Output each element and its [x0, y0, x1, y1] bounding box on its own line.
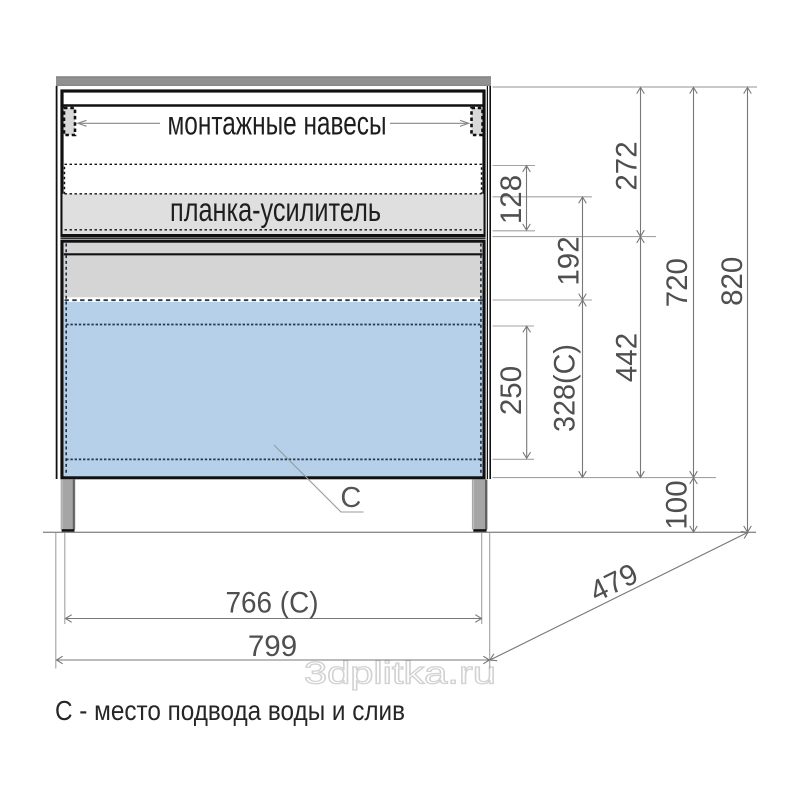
svg-text:328(C): 328(C) — [549, 344, 582, 432]
svg-text:монтажные навесы: монтажные навесы — [168, 105, 387, 142]
svg-text:С - место подвода воды и слив: С - место подвода воды и слив — [55, 695, 405, 726]
svg-text:C: C — [340, 482, 361, 514]
svg-text:192: 192 — [553, 236, 586, 285]
svg-text:766 (C): 766 (C) — [226, 587, 319, 620]
svg-text:479: 479 — [585, 557, 644, 608]
svg-text:планка-усилитель: планка-усилитель — [170, 191, 381, 228]
svg-text:250: 250 — [495, 366, 528, 415]
svg-text:820: 820 — [716, 257, 749, 306]
svg-text:799: 799 — [248, 630, 297, 663]
svg-text:720: 720 — [661, 258, 694, 307]
svg-text:128: 128 — [495, 175, 528, 224]
svg-text:272: 272 — [611, 141, 644, 190]
svg-text:100: 100 — [661, 480, 694, 529]
svg-text:442: 442 — [611, 333, 644, 382]
